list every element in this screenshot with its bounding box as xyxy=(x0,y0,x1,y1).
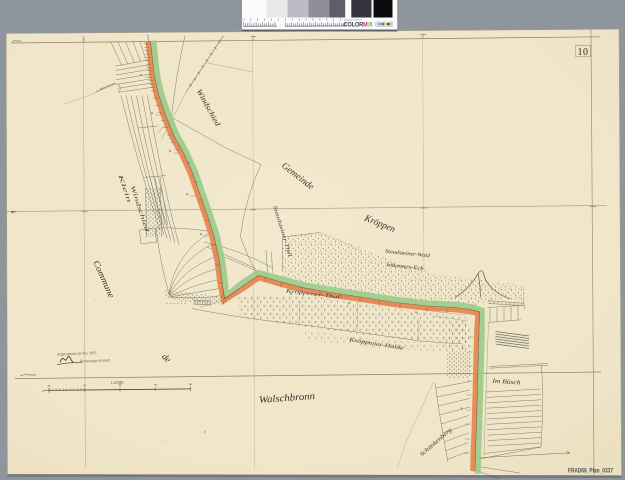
svg-text:10: 10 xyxy=(578,47,589,58)
svg-text:1:2500: 1:2500 xyxy=(111,380,124,385)
svg-text:COLORMIX: COLORMIX xyxy=(344,22,374,29)
svg-text:FRAD68_Plan_0337: FRAD68_Plan_0337 xyxy=(568,468,613,475)
